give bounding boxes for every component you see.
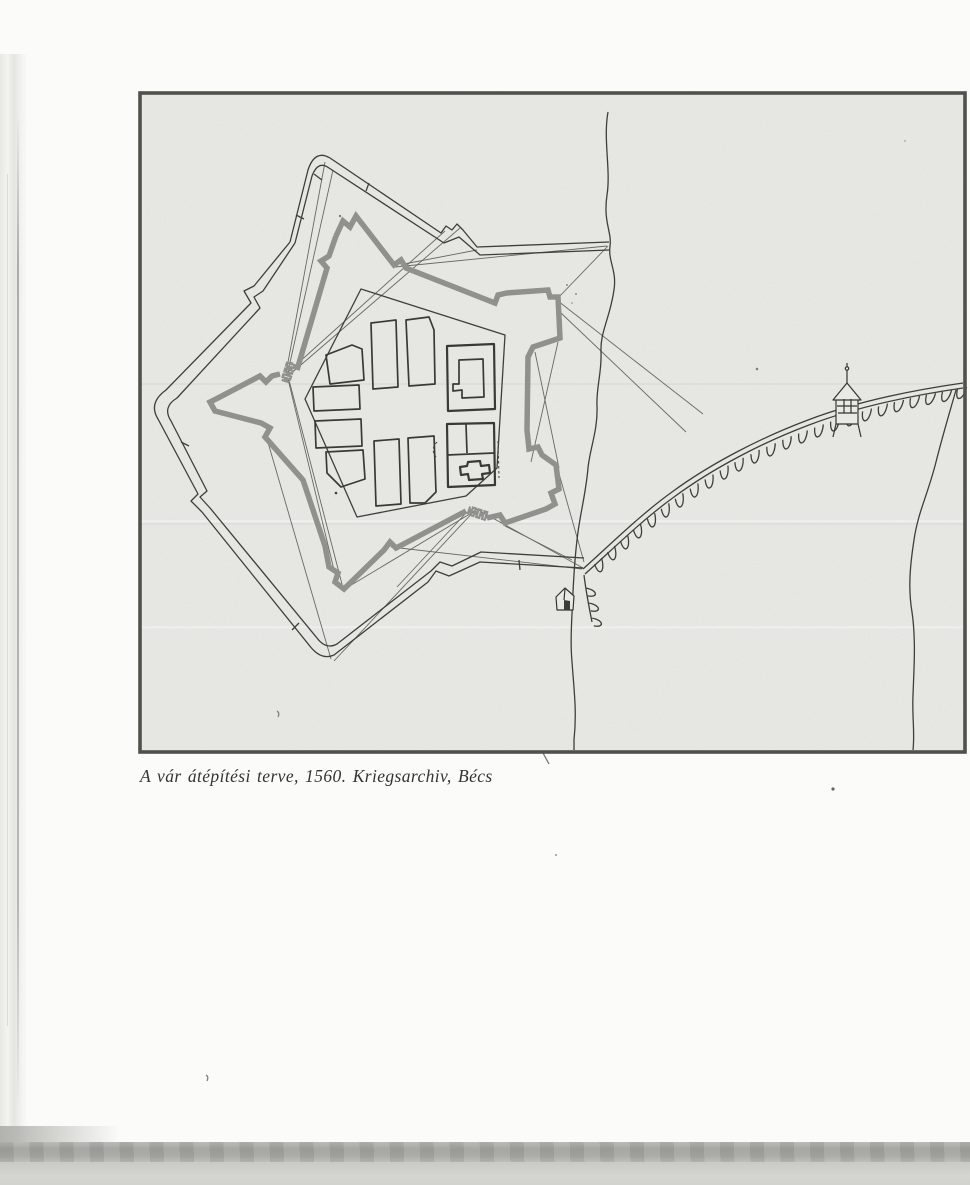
plan-dot — [335, 492, 338, 495]
scan-stripe — [141, 626, 964, 629]
fortress-plan-drawing — [0, 0, 970, 1185]
scanned-page: A vár átépítési terve, 1560. Kriegsarchi… — [0, 0, 970, 1185]
figure-caption: A vár átépítési terve, 1560. Kriegsarchi… — [140, 766, 700, 787]
scan-stripe — [141, 523, 964, 525]
scan-stripe — [141, 520, 964, 523]
